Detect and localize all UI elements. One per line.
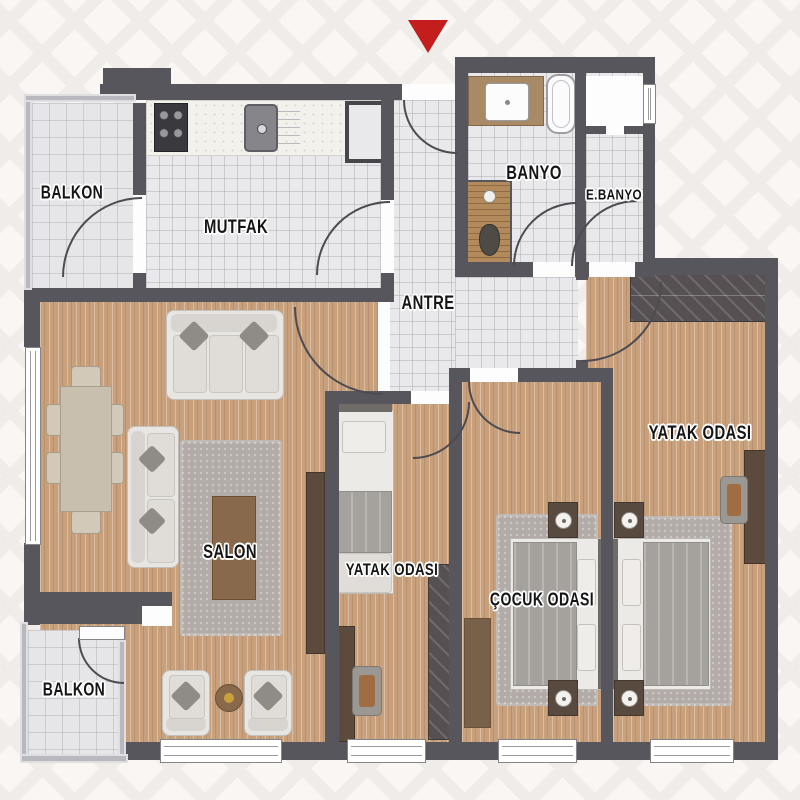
window (498, 739, 577, 763)
window (650, 739, 734, 763)
door-opening (470, 368, 518, 382)
wall (586, 126, 606, 134)
dining-chair-icon (71, 510, 101, 534)
pillow-icon (342, 421, 386, 453)
wall (732, 742, 778, 760)
nightstand-icon (614, 680, 644, 716)
balcony-railing (24, 94, 136, 102)
wall (424, 742, 498, 760)
armchair-icon (162, 670, 210, 736)
wall (462, 368, 470, 382)
balcony-railing (20, 622, 28, 762)
pillow-icon (577, 624, 596, 671)
wall (765, 258, 778, 760)
window (25, 347, 41, 545)
lamp-icon (621, 690, 638, 707)
double-bed-icon (612, 538, 711, 690)
balcony-top-label: BALKON (41, 183, 103, 204)
desk-chair-icon (720, 476, 748, 524)
kitchen-sink-icon (244, 104, 278, 152)
wall (650, 258, 778, 275)
dining-table-icon (60, 386, 112, 512)
sliding-door (79, 626, 125, 640)
window (347, 739, 426, 763)
floor-plan: BALKON MUTFAK BANYO E.BANYO ANTRE SALON … (0, 0, 800, 800)
wall (381, 273, 394, 302)
wall-pillar (103, 68, 171, 86)
dresser-icon (464, 618, 491, 728)
nightstand-icon (614, 502, 644, 538)
wall (142, 592, 172, 606)
washbasin-icon (485, 83, 529, 121)
balcony-bottom-label: BALKON (43, 680, 105, 701)
balcony-railing (24, 94, 32, 290)
balcony-railing (20, 754, 128, 763)
armchair-icon (244, 670, 292, 736)
nightstand-icon (548, 502, 578, 538)
bathroom-label: BANYO (506, 163, 561, 185)
toilet-icon (479, 224, 500, 256)
tv-unit-icon (306, 472, 325, 654)
desk-chair-icon (352, 666, 382, 716)
bathroom-vanity-icon (468, 76, 544, 126)
shower-drain-icon (483, 190, 496, 203)
wall (643, 120, 655, 262)
wall (455, 57, 655, 73)
wall (518, 368, 613, 382)
bedroom1-label: YATAK ODASI (346, 560, 438, 580)
side-table-icon (215, 684, 243, 712)
wall (100, 84, 402, 100)
pillow-icon (622, 624, 641, 671)
pillow-icon (622, 559, 641, 606)
wall (601, 382, 613, 742)
wall (575, 742, 650, 760)
wall (133, 103, 146, 195)
wall (624, 126, 643, 134)
hall-floor-east (455, 277, 578, 368)
kids-room-label: ÇOCUK ODASI (490, 590, 594, 611)
wall (24, 592, 142, 624)
lamp-icon (555, 512, 572, 529)
ensuite-niche (586, 76, 643, 126)
wall-notch (142, 606, 172, 626)
door-opening (606, 124, 624, 135)
lamp-icon (555, 690, 572, 707)
wall (125, 742, 160, 760)
bathtub-icon (546, 74, 576, 134)
door-jamb (576, 272, 588, 280)
ensuite-bathroom-label: E.BANYO (586, 187, 642, 204)
door-opening (402, 84, 455, 100)
wall (449, 404, 462, 742)
wall (280, 742, 347, 760)
living-room-label: SALON (203, 542, 257, 564)
master-bedroom-label: YATAK ODASI (649, 423, 752, 445)
hall-label: ANTRE (401, 293, 454, 315)
stove-icon (154, 103, 188, 152)
double-bed-icon (510, 538, 604, 690)
loveseat-icon (127, 426, 179, 568)
sofa-icon (166, 310, 284, 400)
wall (381, 100, 394, 200)
wall (325, 391, 339, 742)
entrance-arrow-icon (408, 20, 448, 53)
window (643, 84, 656, 124)
drainboard-icon (278, 108, 300, 144)
wall (24, 288, 394, 302)
wall (643, 57, 655, 85)
lamp-icon (621, 512, 638, 529)
nightstand-icon (548, 680, 578, 716)
kitchen-label: MUTFAK (204, 217, 268, 239)
window (160, 739, 282, 763)
wall (449, 368, 462, 404)
shower-icon (466, 180, 512, 266)
